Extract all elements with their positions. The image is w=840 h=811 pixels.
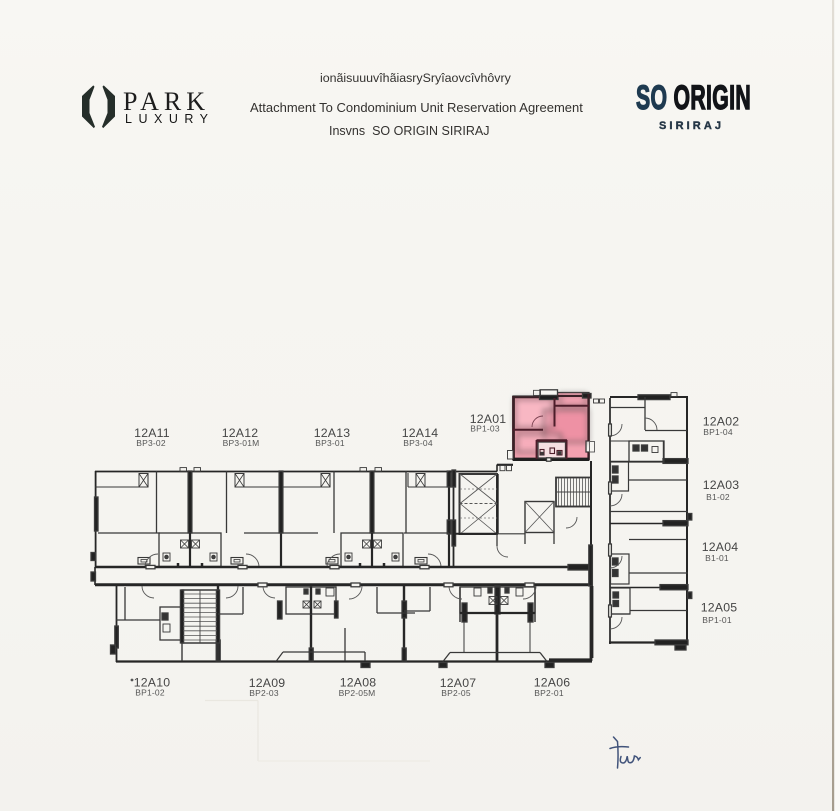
svg-text:BP2-01: BP2-01 — [534, 688, 564, 698]
svg-text:BP3-01M: BP3-01M — [223, 438, 260, 448]
svg-text:12A04: 12A04 — [702, 540, 739, 554]
svg-text:BP2-03: BP2-03 — [249, 688, 279, 698]
svg-text:BP3-02: BP3-02 — [136, 438, 166, 448]
svg-text:BP3-01: BP3-01 — [315, 438, 345, 448]
svg-text:BP1-01: BP1-01 — [702, 615, 732, 625]
svg-text:12A03: 12A03 — [703, 478, 740, 492]
svg-text:BP1-04: BP1-04 — [703, 427, 733, 437]
svg-text:BP1-02: BP1-02 — [135, 688, 165, 698]
svg-text:12A05: 12A05 — [701, 601, 738, 615]
svg-text:B1-02: B1-02 — [706, 492, 730, 502]
svg-text:B1-01: B1-01 — [705, 553, 729, 563]
svg-text:BP2-05M: BP2-05M — [339, 688, 376, 698]
svg-text:BP3-04: BP3-04 — [403, 438, 433, 448]
svg-text:BP2-05: BP2-05 — [441, 688, 471, 698]
svg-text:BP1-03: BP1-03 — [470, 424, 500, 434]
